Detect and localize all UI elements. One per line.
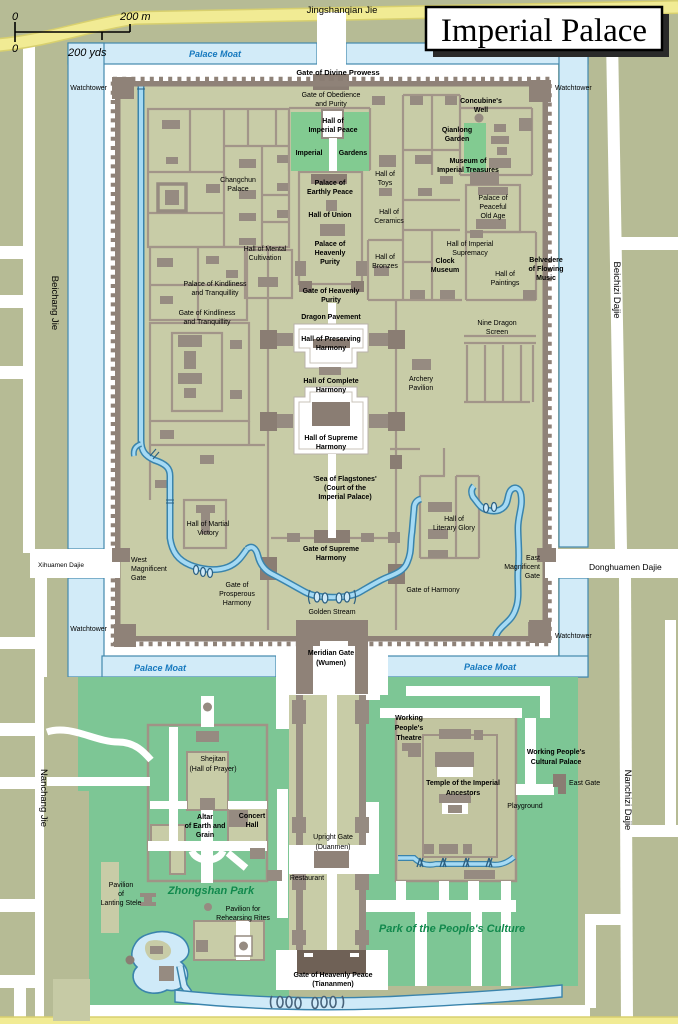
svg-text:Watchtower: Watchtower bbox=[555, 85, 592, 92]
svg-text:Archery: Archery bbox=[409, 376, 434, 383]
svg-text:Pavilion: Pavilion bbox=[109, 882, 134, 889]
svg-text:East: East bbox=[526, 555, 540, 562]
svg-text:Museum: Museum bbox=[431, 267, 459, 274]
svg-text:Palace Moat: Palace Moat bbox=[189, 49, 242, 59]
svg-text:Working People's: Working People's bbox=[527, 749, 585, 756]
svg-text:Shejitan: Shejitan bbox=[200, 756, 225, 763]
svg-text:Gardens: Gardens bbox=[339, 150, 368, 157]
svg-text:Imperial Palace: Imperial Palace bbox=[441, 13, 647, 49]
svg-text:Paintings: Paintings bbox=[491, 280, 520, 287]
svg-text:Gate of Harmony: Gate of Harmony bbox=[406, 587, 460, 594]
svg-text:Nanchizi Dajie: Nanchizi Dajie bbox=[622, 770, 633, 831]
svg-text:Hall of Supreme: Hall of Supreme bbox=[304, 435, 357, 442]
svg-text:Dragon Pavement: Dragon Pavement bbox=[301, 314, 361, 321]
svg-text:Working: Working bbox=[395, 715, 423, 722]
svg-text:Donghuamen Dajie: Donghuamen Dajie bbox=[589, 562, 662, 572]
svg-text:Hall of Imperial: Hall of Imperial bbox=[447, 241, 494, 248]
svg-text:Hall of Complete: Hall of Complete bbox=[303, 378, 358, 385]
svg-text:Jingshanqian Jie: Jingshanqian Jie bbox=[307, 5, 378, 16]
svg-text:Imperial: Imperial bbox=[296, 150, 323, 157]
svg-text:Palace of: Palace of bbox=[478, 195, 507, 202]
svg-text:Rehearsing Rites: Rehearsing Rites bbox=[216, 915, 270, 922]
svg-text:Gate of: Gate of bbox=[226, 582, 249, 589]
svg-text:Well: Well bbox=[474, 107, 488, 114]
svg-text:Restaurant: Restaurant bbox=[290, 875, 324, 882]
svg-text:East Gate: East Gate bbox=[569, 780, 600, 787]
svg-text:Meridian Gate: Meridian Gate bbox=[308, 650, 354, 657]
svg-text:Hall of: Hall of bbox=[495, 271, 515, 278]
svg-text:Imperial Peace: Imperial Peace bbox=[308, 127, 357, 134]
svg-text:Harmony: Harmony bbox=[223, 600, 252, 607]
svg-text:Park of the People's Culture: Park of the People's Culture bbox=[379, 923, 525, 935]
svg-text:Beichang Jie: Beichang Jie bbox=[49, 276, 60, 330]
svg-text:Palace of Kindliness: Palace of Kindliness bbox=[183, 281, 247, 288]
svg-text:Imperial Treasures: Imperial Treasures bbox=[437, 167, 499, 174]
svg-text:Harmony: Harmony bbox=[316, 387, 346, 394]
svg-text:Playground: Playground bbox=[507, 803, 543, 810]
svg-text:Beichizi Dajie: Beichizi Dajie bbox=[611, 261, 622, 318]
svg-text:200 yds: 200 yds bbox=[67, 47, 107, 59]
svg-text:(Duanmen): (Duanmen) bbox=[315, 844, 350, 851]
svg-text:Clock: Clock bbox=[435, 258, 454, 265]
svg-text:West: West bbox=[131, 557, 147, 564]
svg-text:Palace of: Palace of bbox=[315, 241, 346, 248]
svg-text:Belvedere: Belvedere bbox=[529, 257, 563, 264]
svg-text:Gate of Heavenly: Gate of Heavenly bbox=[303, 288, 360, 295]
svg-text:Theatre: Theatre bbox=[396, 735, 421, 742]
svg-text:Harmony: Harmony bbox=[316, 555, 346, 562]
svg-text:Bronzes: Bronzes bbox=[372, 263, 398, 270]
svg-text:of Earth and: of Earth and bbox=[185, 823, 226, 830]
svg-text:Prosperous: Prosperous bbox=[219, 591, 255, 598]
svg-text:Changchun: Changchun bbox=[220, 177, 256, 184]
svg-text:Ancestors: Ancestors bbox=[446, 790, 480, 797]
svg-text:0: 0 bbox=[12, 43, 19, 55]
svg-text:Hall of: Hall of bbox=[444, 516, 464, 523]
svg-text:Hall of Preserving: Hall of Preserving bbox=[301, 336, 361, 343]
svg-text:'Sea of Flagstones': 'Sea of Flagstones' bbox=[313, 476, 377, 483]
svg-text:Harmony: Harmony bbox=[316, 345, 346, 352]
svg-text:(Wumen): (Wumen) bbox=[316, 660, 346, 667]
svg-text:Nanchang Jie: Nanchang Jie bbox=[38, 769, 49, 827]
svg-text:Hall of: Hall of bbox=[379, 209, 399, 216]
svg-text:Golden Stream: Golden Stream bbox=[308, 609, 355, 616]
svg-text:Qianlong: Qianlong bbox=[442, 127, 472, 134]
svg-text:Hall of: Hall of bbox=[375, 254, 395, 261]
svg-text:Pavilion for: Pavilion for bbox=[226, 906, 261, 913]
svg-text:Harmony: Harmony bbox=[316, 444, 346, 451]
svg-text:Gate of Divine Prowess: Gate of Divine Prowess bbox=[296, 68, 379, 77]
svg-text:and Purity: and Purity bbox=[315, 101, 347, 108]
svg-text:Hall of: Hall of bbox=[322, 118, 344, 125]
svg-text:Xihuamen Dajie: Xihuamen Dajie bbox=[38, 562, 84, 569]
svg-text:Watchtower: Watchtower bbox=[555, 633, 592, 640]
svg-text:Pavilion: Pavilion bbox=[409, 385, 434, 392]
svg-text:Earthly Peace: Earthly Peace bbox=[307, 189, 353, 196]
svg-text:Cultivation: Cultivation bbox=[249, 255, 282, 262]
svg-text:Concert: Concert bbox=[239, 813, 266, 820]
svg-text:Imperial Palace): Imperial Palace) bbox=[318, 494, 371, 501]
svg-text:Peaceful: Peaceful bbox=[479, 204, 507, 211]
svg-text:Gate of Supreme: Gate of Supreme bbox=[303, 546, 359, 553]
svg-text:Hall of: Hall of bbox=[375, 171, 395, 178]
svg-text:Heavenly: Heavenly bbox=[315, 250, 346, 257]
svg-text:of: of bbox=[118, 891, 124, 898]
svg-text:Concubine's: Concubine's bbox=[460, 98, 502, 105]
svg-text:Toys: Toys bbox=[378, 180, 393, 187]
svg-text:Zhongshan Park: Zhongshan Park bbox=[167, 885, 255, 897]
svg-text:0: 0 bbox=[12, 11, 19, 23]
svg-text:Gate of Kindliness: Gate of Kindliness bbox=[179, 310, 236, 317]
svg-text:Purity: Purity bbox=[320, 259, 340, 266]
svg-text:Ceramics: Ceramics bbox=[374, 218, 404, 225]
svg-text:Watchtower: Watchtower bbox=[70, 626, 107, 633]
svg-text:(Tiananmen): (Tiananmen) bbox=[312, 981, 354, 988]
svg-text:Gate: Gate bbox=[525, 573, 540, 580]
svg-text:People's: People's bbox=[395, 725, 424, 732]
svg-text:Watchtower: Watchtower bbox=[70, 85, 107, 92]
svg-text:of Flowing: of Flowing bbox=[529, 266, 564, 273]
svg-text:Music: Music bbox=[536, 275, 556, 282]
svg-text:Purity: Purity bbox=[321, 297, 341, 304]
svg-text:(Hall of Prayer): (Hall of Prayer) bbox=[189, 766, 236, 773]
svg-text:Gate: Gate bbox=[131, 575, 146, 582]
svg-text:and Tranquillity: and Tranquillity bbox=[191, 290, 239, 297]
svg-text:Gate of Obedience: Gate of Obedience bbox=[302, 92, 361, 99]
svg-text:Hall of Union: Hall of Union bbox=[308, 212, 351, 219]
svg-text:Grain: Grain bbox=[196, 832, 214, 839]
svg-text:Cultural Palace: Cultural Palace bbox=[531, 759, 582, 766]
svg-text:Hall of Mental: Hall of Mental bbox=[244, 246, 287, 253]
svg-text:Literary Glory: Literary Glory bbox=[433, 525, 476, 532]
svg-text:Screen: Screen bbox=[486, 329, 508, 336]
svg-text:Old Age: Old Age bbox=[481, 213, 506, 220]
svg-text:Temple of the Imperial: Temple of the Imperial bbox=[426, 780, 500, 787]
svg-text:Palace: Palace bbox=[227, 186, 249, 193]
svg-text:200 m: 200 m bbox=[119, 11, 151, 23]
svg-text:(Court of the: (Court of the bbox=[324, 485, 366, 492]
svg-text:Magnificent: Magnificent bbox=[504, 564, 540, 571]
svg-text:Victory: Victory bbox=[197, 530, 219, 537]
svg-text:Palace of: Palace of bbox=[315, 180, 346, 187]
svg-text:Lanting Stele: Lanting Stele bbox=[101, 900, 142, 907]
svg-text:Museum of: Museum of bbox=[450, 158, 488, 165]
svg-text:Gate of Heavenly Peace: Gate of Heavenly Peace bbox=[294, 972, 373, 979]
svg-text:Altar: Altar bbox=[197, 814, 213, 821]
svg-text:Hall of Martial: Hall of Martial bbox=[187, 521, 230, 528]
svg-text:Magnificent: Magnificent bbox=[131, 566, 167, 573]
svg-text:Upright Gate: Upright Gate bbox=[313, 834, 353, 841]
svg-text:and Tranquillity: and Tranquillity bbox=[183, 319, 231, 326]
svg-text:Hall: Hall bbox=[246, 822, 259, 829]
svg-text:Garden: Garden bbox=[445, 136, 470, 143]
svg-text:Nine Dragon: Nine Dragon bbox=[477, 320, 516, 327]
svg-text:Palace Moat: Palace Moat bbox=[464, 662, 517, 672]
svg-text:Palace Moat: Palace Moat bbox=[134, 663, 187, 673]
svg-text:Supremacy: Supremacy bbox=[452, 250, 488, 257]
